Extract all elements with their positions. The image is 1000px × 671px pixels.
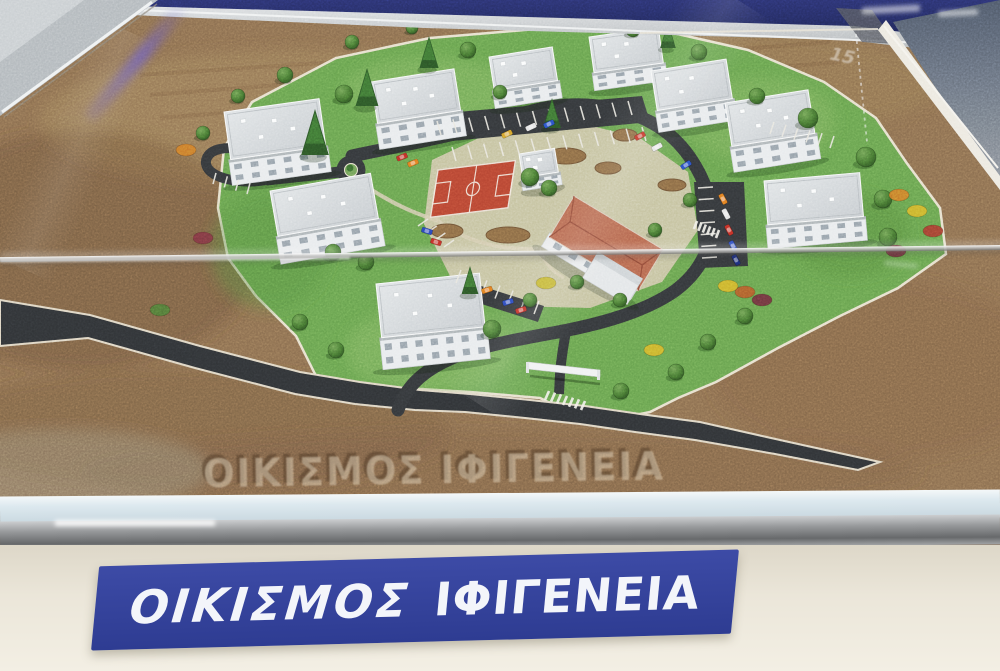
photo-grain bbox=[0, 0, 1000, 500]
name-plaque: ΟΙΚΙΣΜΟΣ ΙΦΙΓΕΝΕΙΑ bbox=[91, 550, 739, 651]
plaque-word-ifigeneia: ΙΦΙΓΕΝΕΙΑ bbox=[432, 565, 703, 626]
plaque-word-oikismos: ΟΙΚΙΣΜΟΣ bbox=[127, 573, 413, 635]
display-wall bbox=[0, 545, 1000, 671]
display-case-photo: 15 ΟΙΚΙΣΜΟΣ ΙΦΙΓΕΝΕΙΑ ΟΙΚΙΣΜΟΣ ΙΦΙΓΕΝΕΙΑ bbox=[0, 0, 1000, 671]
site-model bbox=[0, 0, 1000, 500]
case-metal-rail bbox=[0, 515, 1000, 552]
metal-rail-glint bbox=[55, 520, 215, 526]
